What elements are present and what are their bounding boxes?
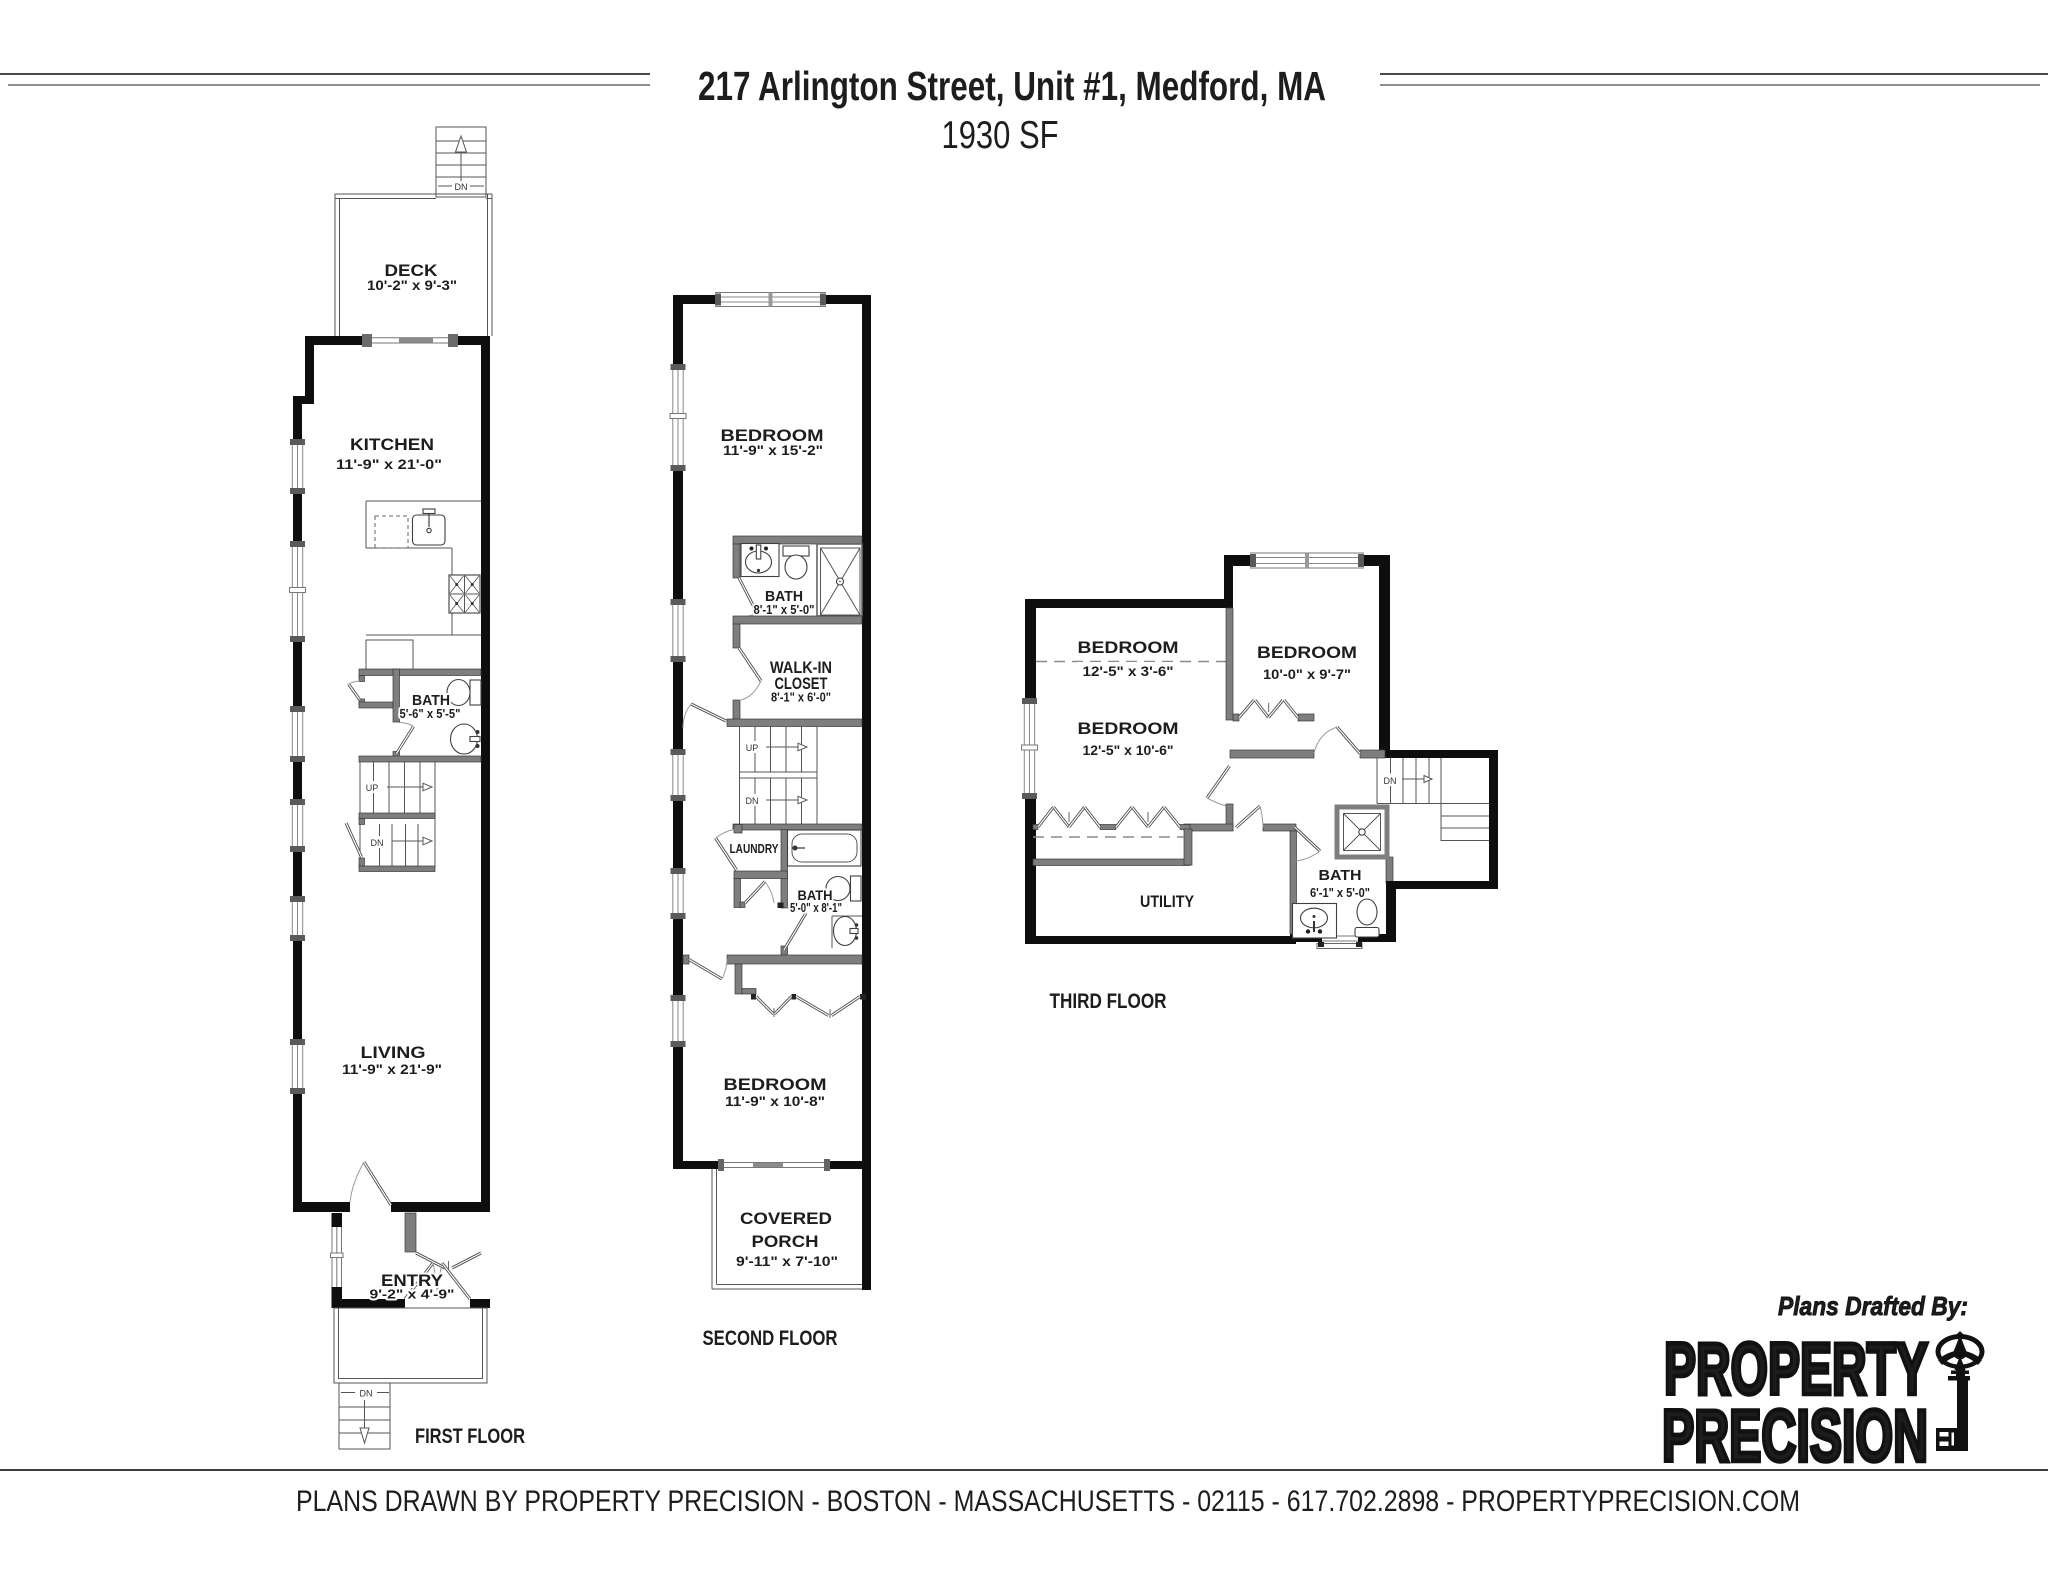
svg-text:12'-5" x 3'-6": 12'-5" x 3'-6" [1083,663,1174,679]
svg-text:8'-1" x 5'-0": 8'-1" x 5'-0" [754,603,815,617]
svg-text:11'-9" x 21'-9": 11'-9" x 21'-9" [342,1061,442,1077]
svg-text:PRECISION: PRECISION [1662,1396,1928,1477]
svg-text:6'-1" x 5'-0": 6'-1" x 5'-0" [1310,886,1370,900]
svg-text:DN: DN [455,182,468,192]
svg-text:DN: DN [746,796,759,806]
svg-text:Plans Drafted By:: Plans Drafted By: [1778,1291,1968,1321]
svg-text:COVERED: COVERED [740,1209,832,1228]
svg-text:10'-0" x 9'-7": 10'-0" x 9'-7" [1263,666,1351,682]
svg-text:SECOND FLOOR: SECOND FLOOR [703,1327,838,1350]
svg-text:BEDROOM: BEDROOM [1078,719,1179,738]
svg-text:11'-9" x 21'-0": 11'-9" x 21'-0" [336,456,442,472]
svg-text:THIRD FLOOR: THIRD FLOOR [1050,990,1167,1013]
svg-text:UP: UP [366,783,379,793]
svg-text:DN: DN [1384,776,1397,786]
svg-text:KITCHEN: KITCHEN [350,435,434,454]
svg-text:UP: UP [746,743,759,753]
svg-text:FIRST FLOOR: FIRST FLOOR [415,1425,525,1448]
svg-text:LIVING: LIVING [361,1043,426,1062]
svg-text:8'-1" x 6'-0": 8'-1" x 6'-0" [771,691,831,705]
svg-text:217 Arlington Street, Unit #1,: 217 Arlington Street, Unit #1, Medford, … [698,63,1326,109]
svg-text:PORCH: PORCH [752,1232,819,1251]
svg-text:UTILITY: UTILITY [1140,892,1195,911]
svg-text:10'-2" x 9'-3": 10'-2" x 9'-3" [367,277,457,293]
svg-text:BATH: BATH [1319,867,1362,884]
svg-text:9'-11" x 7'-10": 9'-11" x 7'-10" [736,1253,838,1269]
svg-text:DN: DN [371,838,384,848]
svg-text:BEDROOM: BEDROOM [1078,638,1179,657]
svg-text:5'-6" x 5'-5": 5'-6" x 5'-5" [400,707,461,721]
svg-text:LAUNDRY: LAUNDRY [730,842,780,856]
svg-text:BEDROOM: BEDROOM [1257,643,1357,662]
svg-text:DN: DN [360,1389,373,1399]
svg-text:PLANS DRAWN BY PROPERTY PRECIS: PLANS DRAWN BY PROPERTY PRECISION - BOST… [296,1485,1800,1518]
svg-text:5'-0" x 8'-1": 5'-0" x 8'-1" [790,901,842,915]
svg-text:11'-9" x 10'-8": 11'-9" x 10'-8" [725,1093,825,1109]
svg-text:1930 SF: 1930 SF [942,114,1059,157]
svg-text:BEDROOM: BEDROOM [724,1075,827,1094]
svg-text:9'-2" x 4'-9": 9'-2" x 4'-9" [370,1288,455,1302]
svg-text:11'-9" x 15'-2": 11'-9" x 15'-2" [723,442,823,458]
svg-text:12'-5" x 10'-6": 12'-5" x 10'-6" [1083,742,1174,758]
